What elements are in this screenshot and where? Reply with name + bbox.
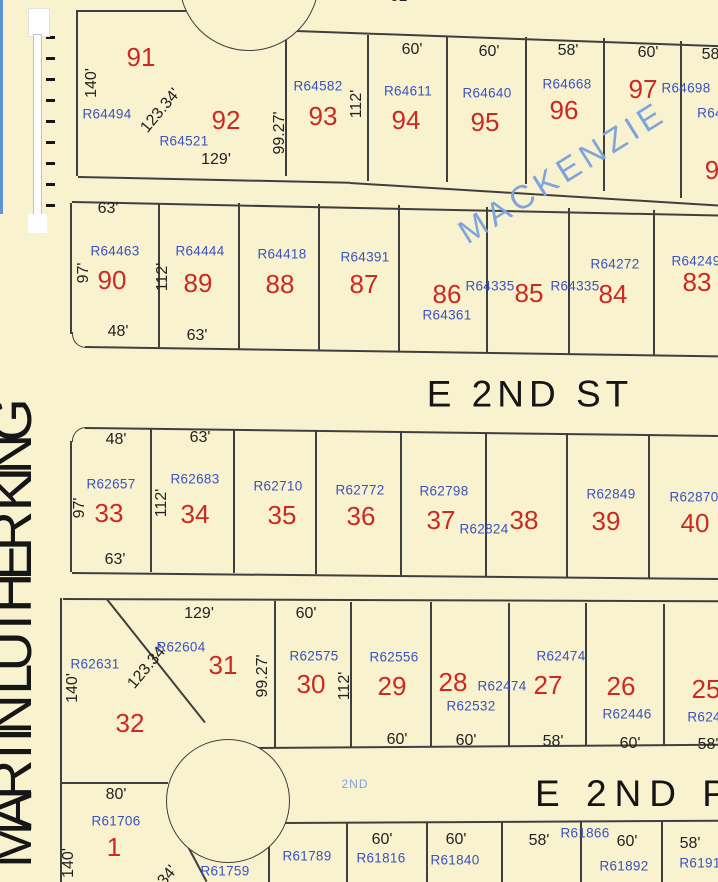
- parcel-id-label: R62446: [602, 707, 651, 721]
- parcel-boundary-line: [274, 601, 276, 747]
- parcel-boundary-line: [257, 744, 718, 749]
- parcel-boundary-line: [648, 434, 650, 578]
- dimension-label: 140': [61, 848, 77, 878]
- parcel-boundary-line: [430, 602, 432, 746]
- lot-number-label: 88: [266, 271, 295, 297]
- dimension-label: 97': [76, 263, 92, 284]
- lot-number-label: 9: [705, 157, 718, 183]
- parcel-id-label: R62710: [253, 479, 302, 493]
- lot-number-label: 31: [209, 652, 238, 678]
- parcel-boundary-line: [85, 346, 718, 357]
- lot-number-label: 36: [347, 503, 376, 529]
- lot-number-label: 87: [350, 271, 379, 297]
- parcel-boundary-line: [315, 431, 317, 574]
- dimension-label: 140': [65, 673, 81, 703]
- parcel-boundary-line: [63, 598, 718, 602]
- parcel-id-label: R61759: [200, 864, 249, 878]
- dimension-label: 60': [617, 834, 638, 850]
- lot-number-label: 28: [439, 669, 468, 695]
- parcel-boundary-line: [72, 572, 718, 580]
- parcel-boundary-line: [72, 201, 718, 216]
- lot-number-label: 26: [607, 673, 636, 699]
- parcel-boundary-line: [585, 603, 587, 745]
- annotation-handle-bottom[interactable]: [28, 214, 47, 233]
- dimension-label: 60': [296, 606, 317, 622]
- parcel-id-label: R62474: [536, 649, 585, 663]
- map-edge-blue-line: [0, 0, 3, 214]
- parcel-boundary-line: [78, 176, 350, 183]
- dimension-label: 140': [84, 68, 100, 98]
- lot-number-label: 25: [692, 676, 718, 702]
- parcel-id-label: R6191: [679, 856, 718, 870]
- centerline-dash: [46, 141, 55, 144]
- lot-number-label: 83: [683, 269, 712, 295]
- dimension-label: 60': [456, 733, 477, 749]
- lot-number-label: 95: [471, 109, 500, 135]
- parcel-id-label: R62824: [459, 522, 508, 536]
- street-label-martin-luther-king: MARTIN LUTHER KING: [0, 0, 56, 868]
- parcel-id-label: R64698: [661, 81, 710, 95]
- parcel-boundary-line: [233, 430, 235, 573]
- dimension-label: 112': [349, 90, 365, 119]
- parcel-id-label: R62474: [477, 679, 526, 693]
- lot-number-label: 96: [550, 97, 579, 123]
- parcel-id-label: R64494: [82, 107, 131, 121]
- lot-number-label: 40: [681, 510, 710, 536]
- lot-number-label: 93: [309, 103, 338, 129]
- parcel-boundary-line: [268, 843, 270, 882]
- dimension-label: 60': [387, 732, 408, 748]
- parcel-boundary-line: [566, 433, 568, 577]
- parcel-id-label: R64611: [384, 84, 432, 98]
- parcel-boundary-line: [367, 35, 369, 181]
- parcel-boundary-line: [426, 822, 428, 882]
- parcel-id-label: R64361: [422, 308, 471, 322]
- centerline-dash: [46, 183, 55, 186]
- parcel-id-label: R62849: [586, 487, 635, 501]
- annotation-handle-top[interactable]: [28, 8, 50, 37]
- dimension-label: 58': [702, 47, 718, 63]
- parcel-id-label: R64335: [550, 279, 599, 293]
- parcel-boundary-line: [70, 203, 72, 334]
- dimension-label: 129': [184, 606, 214, 622]
- parcel-id-label: R62556: [369, 650, 418, 664]
- dimension-label: 97': [72, 498, 88, 519]
- dimension-label: 61': [390, 0, 411, 5]
- parcel-id-label: R6241: [687, 710, 718, 724]
- lot-number-label: 85: [515, 280, 544, 306]
- parcel-boundary-line: [446, 36, 448, 182]
- parcel-id-label: R62798: [419, 484, 468, 498]
- parcel-id-label: R64249: [671, 254, 718, 268]
- parcel-boundary-line: [653, 210, 655, 355]
- parcel-boundary-line: [508, 603, 510, 746]
- centerline-dash: [46, 78, 55, 81]
- parcel-id-label: R61789: [282, 849, 331, 863]
- lot-number-label: 32: [116, 710, 145, 736]
- dimension-label: 123.34': [138, 86, 184, 136]
- dimension-label: 48': [108, 324, 129, 340]
- parcel-id-label: R62772: [335, 483, 384, 497]
- parcel-id-label: R62604: [156, 640, 205, 654]
- dimension-label: 99.27': [272, 111, 288, 154]
- parcel-boundary-line: [398, 205, 400, 352]
- parcel-id-label: R64668: [542, 77, 591, 91]
- dimension-label: 123.34': [135, 863, 181, 882]
- parcel-id-label: R64: [697, 106, 718, 120]
- dimension-label: 112': [337, 672, 353, 701]
- parcel-id-label: R64582: [293, 79, 342, 93]
- parcel-boundary-line: [62, 782, 168, 784]
- parcel-id-label: R61840: [430, 853, 479, 867]
- parcel-boundary-line: [661, 821, 663, 882]
- parcel-boundary-line: [76, 10, 78, 176]
- parcel-id-label: R64418: [257, 247, 306, 261]
- lot-number-label: 90: [98, 267, 127, 293]
- lot-number-label: 92: [212, 107, 241, 133]
- parcel-id-label: R62657: [86, 477, 135, 491]
- street-label-2nd-small: 2ND: [341, 778, 368, 790]
- street-label-e-2nd-partial: E 2ND P: [535, 775, 718, 812]
- parcel-id-label: R61866: [560, 826, 609, 840]
- lot-number-label: 84: [599, 281, 628, 307]
- dimension-label: 58': [558, 43, 579, 59]
- parcel-boundary-line: [680, 41, 682, 198]
- parcel-id-label: R64444: [175, 244, 224, 258]
- parcel-id-label: R64521: [159, 134, 208, 148]
- dimension-label: 60': [372, 832, 393, 848]
- dimension-label: 63': [190, 430, 211, 446]
- parcel-boundary-line: [150, 429, 152, 572]
- cul-de-sac-top: [179, 0, 319, 51]
- centerline-dash: [46, 162, 55, 165]
- dimension-label: 99.27': [255, 654, 271, 697]
- cul-de-sac-bottom: [166, 739, 290, 863]
- dimension-label: 60': [620, 736, 641, 752]
- dimension-label: 58': [698, 737, 718, 753]
- dimension-label: 63': [98, 201, 119, 217]
- lot-number-label: 39: [592, 508, 621, 534]
- lot-number-label: 29: [378, 673, 407, 699]
- parcel-id-label: R64272: [590, 257, 639, 271]
- lot-number-label: 35: [268, 502, 297, 528]
- lot-number-label: 91: [127, 44, 156, 70]
- parcel-boundary-line: [400, 432, 402, 575]
- parcel-boundary-line: [78, 10, 186, 12]
- parcel-id-label: R61816: [356, 851, 405, 865]
- dimension-label: 48': [106, 432, 127, 448]
- dimension-label: 58': [680, 836, 701, 852]
- dimension-label: 63': [187, 328, 208, 344]
- parcel-id-label: R62870: [669, 490, 718, 504]
- dimension-label: 63': [105, 552, 126, 568]
- parcel-id-label: R64335: [465, 279, 514, 293]
- parcel-id-label: R61892: [599, 859, 648, 873]
- lot-number-label: 30: [297, 671, 326, 697]
- lot-number-label: 34: [181, 501, 210, 527]
- parcel-id-label: R64640: [462, 86, 511, 100]
- dimension-label: 60': [638, 45, 659, 61]
- lot-number-label: 37: [427, 507, 456, 533]
- parcel-boundary-line: [603, 38, 605, 191]
- dimension-label: 58': [529, 833, 550, 849]
- centerline-dash: [46, 99, 55, 102]
- annotation-track[interactable]: [33, 34, 42, 218]
- lot-number-label: 27: [534, 672, 563, 698]
- parcel-boundary-line: [60, 598, 62, 882]
- lot-number-label: 86: [433, 281, 462, 307]
- dimension-label: 60': [402, 42, 423, 58]
- parcel-boundary-line: [238, 203, 240, 349]
- parcel-boundary-line: [346, 822, 348, 882]
- parcel-boundary-line: [318, 204, 320, 351]
- street-label-e-2nd-st: E 2ND ST: [427, 376, 634, 413]
- dimension-label: 60': [446, 832, 467, 848]
- parcel-id-label: R64463: [90, 244, 139, 258]
- dimension-label: 60': [479, 44, 500, 60]
- parcel-id-label: R62532: [446, 699, 495, 713]
- lot-number-label: 1: [107, 834, 121, 860]
- parcel-id-label: R62575: [289, 649, 338, 663]
- centerline-dash: [46, 120, 55, 123]
- parcel-boundary-line: [663, 604, 665, 745]
- dimension-label: 58': [543, 734, 564, 750]
- parcel-id-label: R61706: [91, 814, 140, 828]
- lot-number-label: 89: [184, 270, 213, 296]
- parcel-boundary-line: [285, 33, 287, 176]
- dimension-label: 80': [106, 787, 127, 803]
- dimension-label: 112': [155, 263, 171, 292]
- parcel-id-label: R64391: [340, 250, 389, 264]
- lot-number-label: 94: [392, 107, 421, 133]
- parcel-id-label: R62683: [170, 472, 219, 486]
- dimension-label: 129': [201, 152, 231, 168]
- parcel-boundary-line: [485, 433, 487, 576]
- lot-number-label: 33: [95, 500, 124, 526]
- centerline-dash: [46, 57, 55, 60]
- lot-number-label: 38: [510, 507, 539, 533]
- centerline-dash: [46, 204, 55, 207]
- parcel-id-label: R62631: [70, 657, 119, 671]
- parcel-corner-arc: [72, 427, 87, 442]
- parcel-boundary-line: [525, 37, 527, 184]
- parcel-boundary-line: [501, 822, 503, 882]
- dimension-label: 112': [154, 489, 170, 518]
- parcel-map-canvas: 61'91140'R64494123.34'92R64521129'99.27'…: [0, 0, 718, 882]
